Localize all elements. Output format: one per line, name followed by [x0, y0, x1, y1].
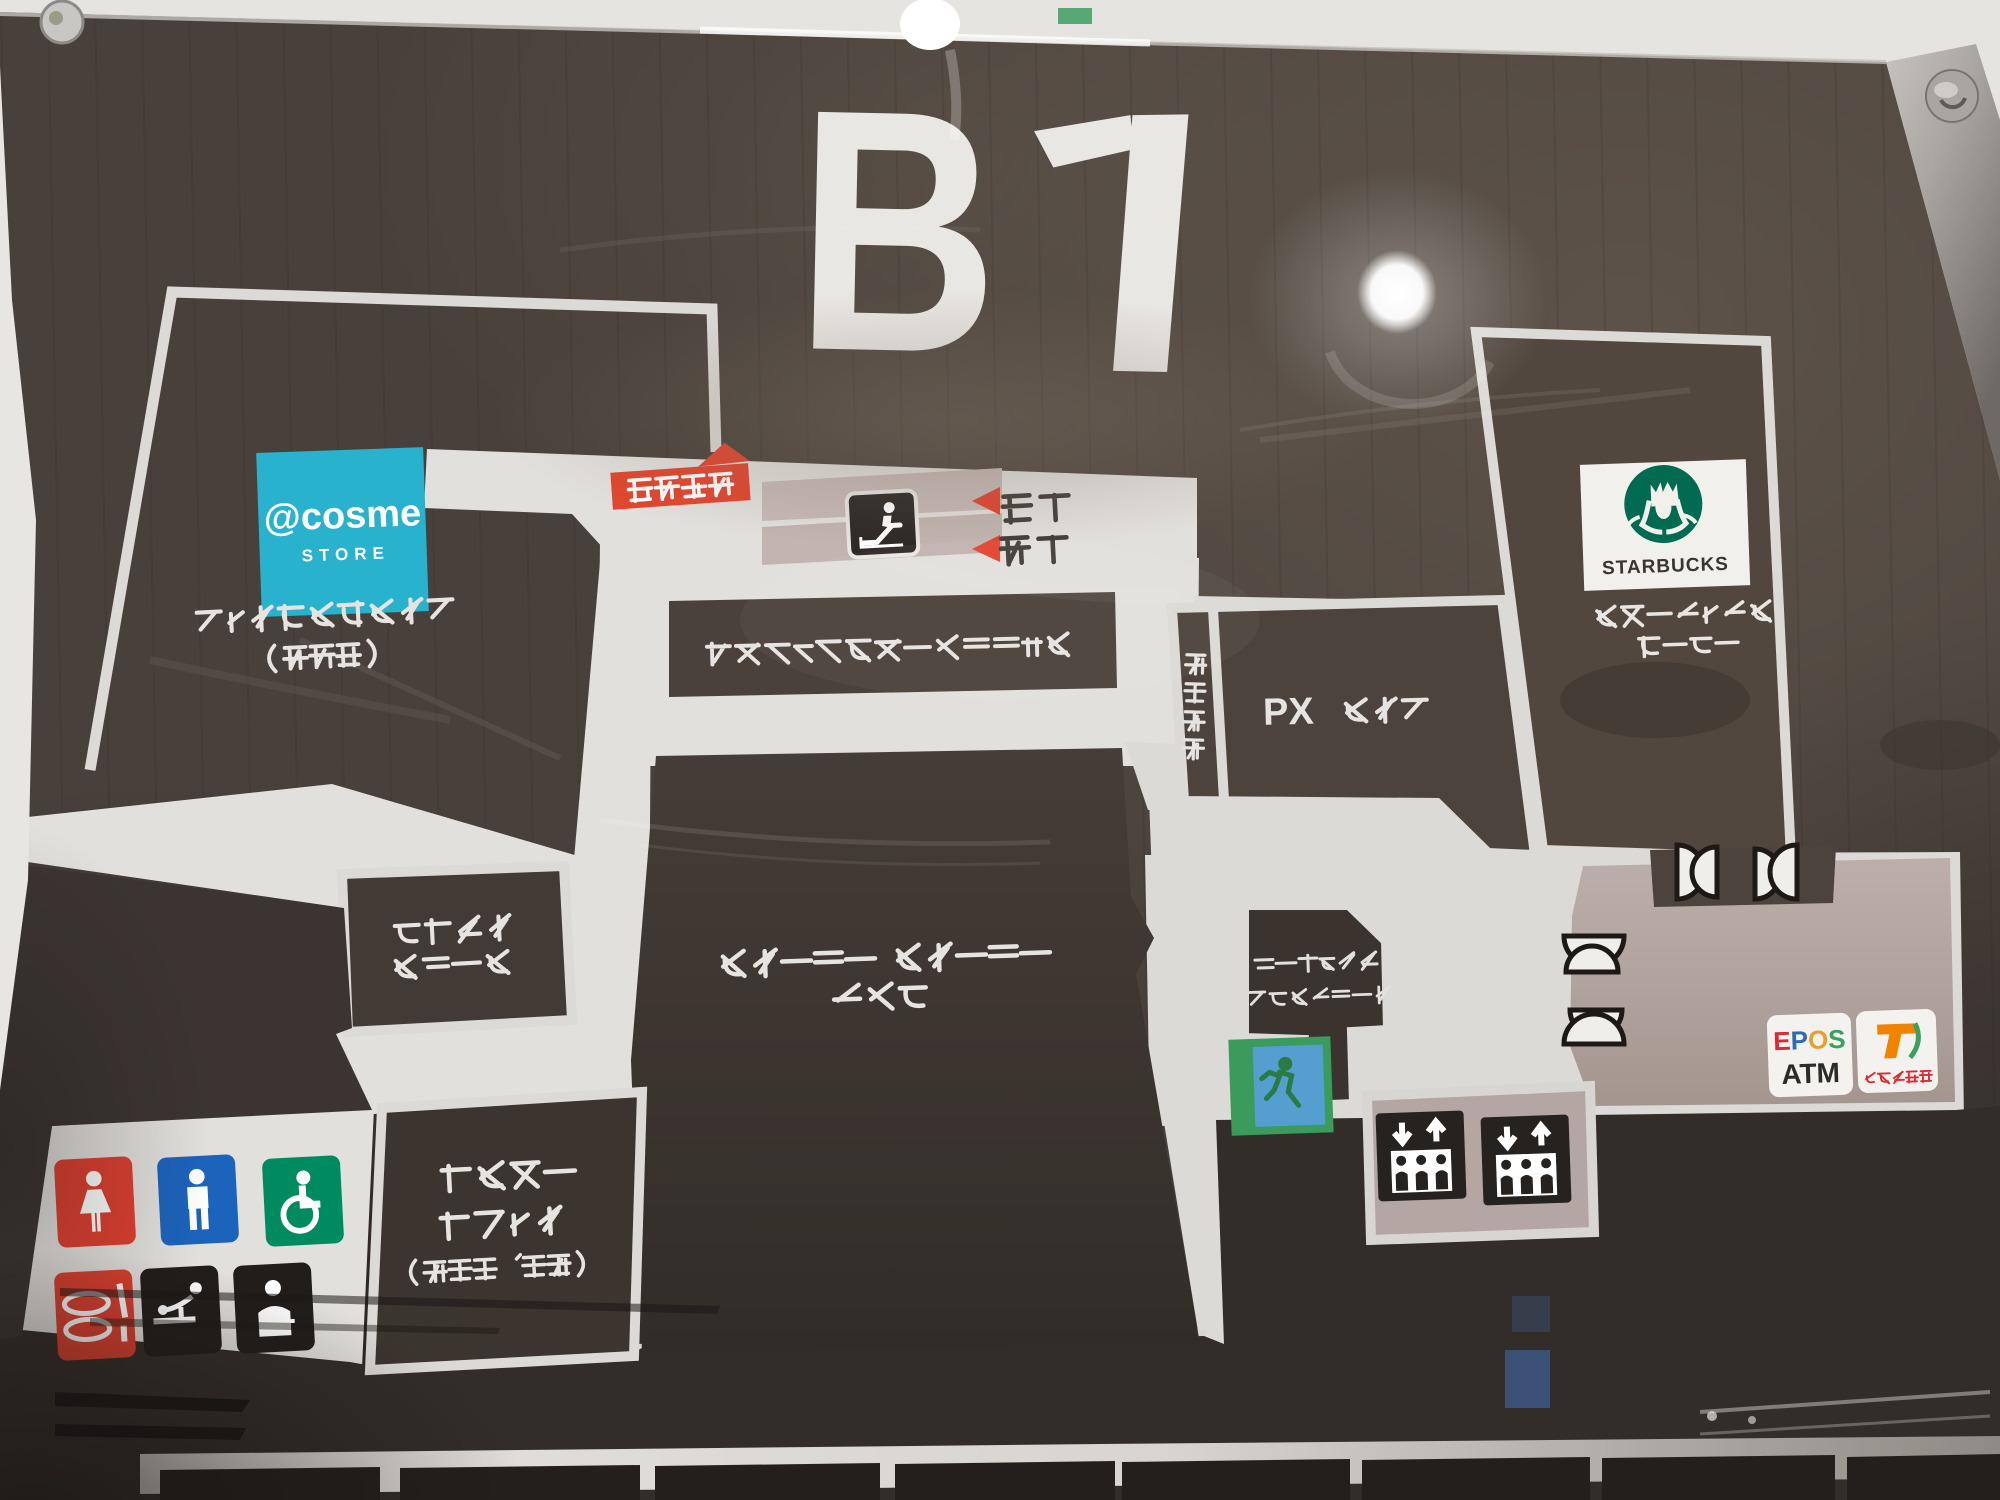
svg-text:STARBUCKS: STARBUCKS	[1602, 554, 1730, 579]
svg-text:EPOS: EPOS	[1773, 1024, 1846, 1057]
svg-text:STORE: STORE	[301, 543, 390, 565]
svg-text:@cosme: @cosme	[263, 492, 422, 539]
svg-text:ATM: ATM	[1781, 1057, 1841, 1090]
svg-text:PX: PX	[1263, 691, 1315, 734]
